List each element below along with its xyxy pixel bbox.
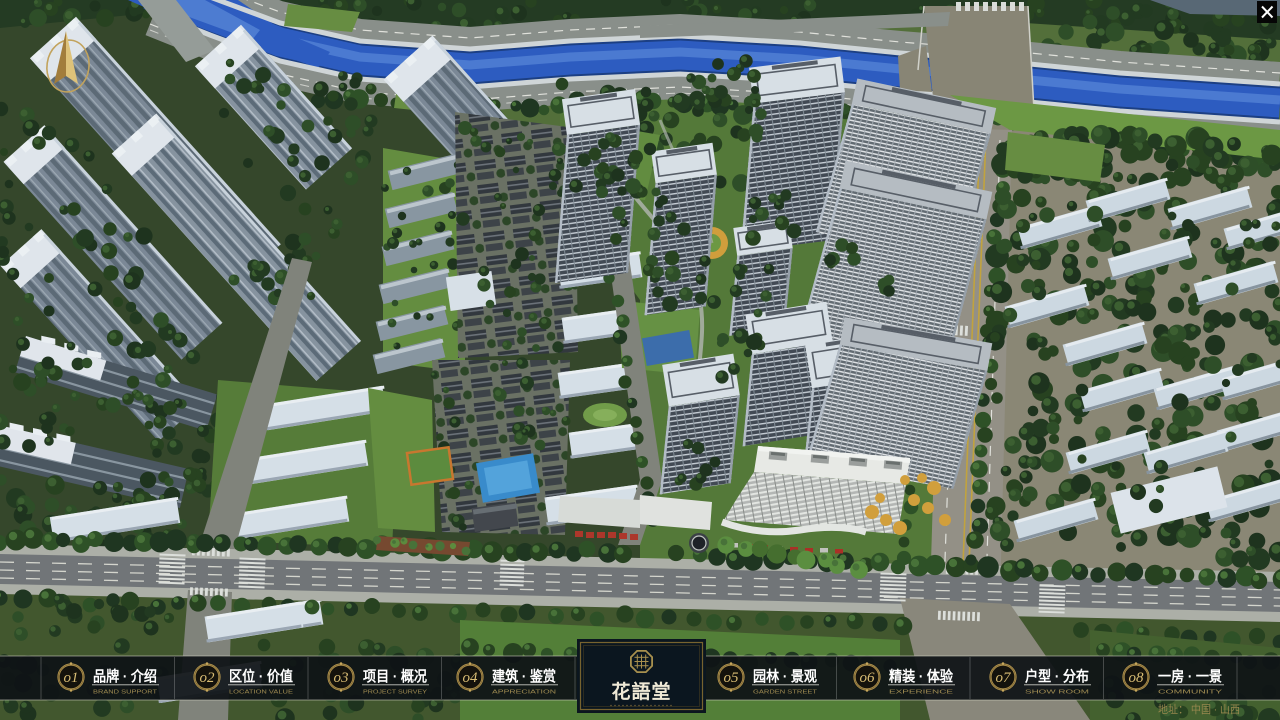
svg-text:SHOW ROOM: SHOW ROOM: [1025, 690, 1089, 696]
svg-text:o6: o6: [860, 670, 876, 686]
svg-text:o4: o4: [463, 670, 479, 686]
svg-text:o7: o7: [996, 670, 1013, 686]
svg-text:建筑 · 鉴赏: 建筑 · 鉴赏: [492, 668, 556, 686]
svg-text:EXPERIENCE: EXPERIENCE: [889, 690, 953, 696]
svg-text:COMMUNITY: COMMUNITY: [1158, 690, 1222, 696]
svg-text:精装 · 体验: 精装 · 体验: [889, 668, 953, 686]
svg-text:APPRECIATION: APPRECIATION: [492, 690, 556, 696]
svg-text:地址： 中国 · 山西: 地址： 中国 · 山西: [1158, 702, 1240, 716]
svg-text:o2: o2: [200, 670, 216, 686]
svg-text:o1: o1: [64, 670, 79, 686]
svg-text:一房 · 一景: 一房 · 一景: [1158, 668, 1222, 686]
svg-text:o3: o3: [334, 670, 349, 686]
svg-text:项目 · 概况: 项目 · 概况: [363, 668, 427, 686]
svg-text:户型 · 分布: 户型 · 分布: [1025, 668, 1089, 686]
svg-text:LOCATION VALUE: LOCATION VALUE: [229, 690, 293, 696]
svg-text:园林 · 景观: 园林 · 景观: [753, 668, 817, 686]
svg-text:区位 · 价值: 区位 · 价值: [229, 668, 293, 686]
svg-text:GARDEN STREET: GARDEN STREET: [753, 690, 818, 696]
svg-text:o8: o8: [1129, 670, 1145, 686]
svg-text:PROJECT SURVEY: PROJECT SURVEY: [363, 690, 427, 696]
svg-text:BRAND SUPPORT: BRAND SUPPORT: [93, 690, 158, 696]
svg-text:o5: o5: [724, 670, 740, 686]
svg-text:品牌 · 介绍: 品牌 · 介绍: [93, 668, 157, 686]
svg-text:花語堂: 花語堂: [611, 680, 671, 703]
